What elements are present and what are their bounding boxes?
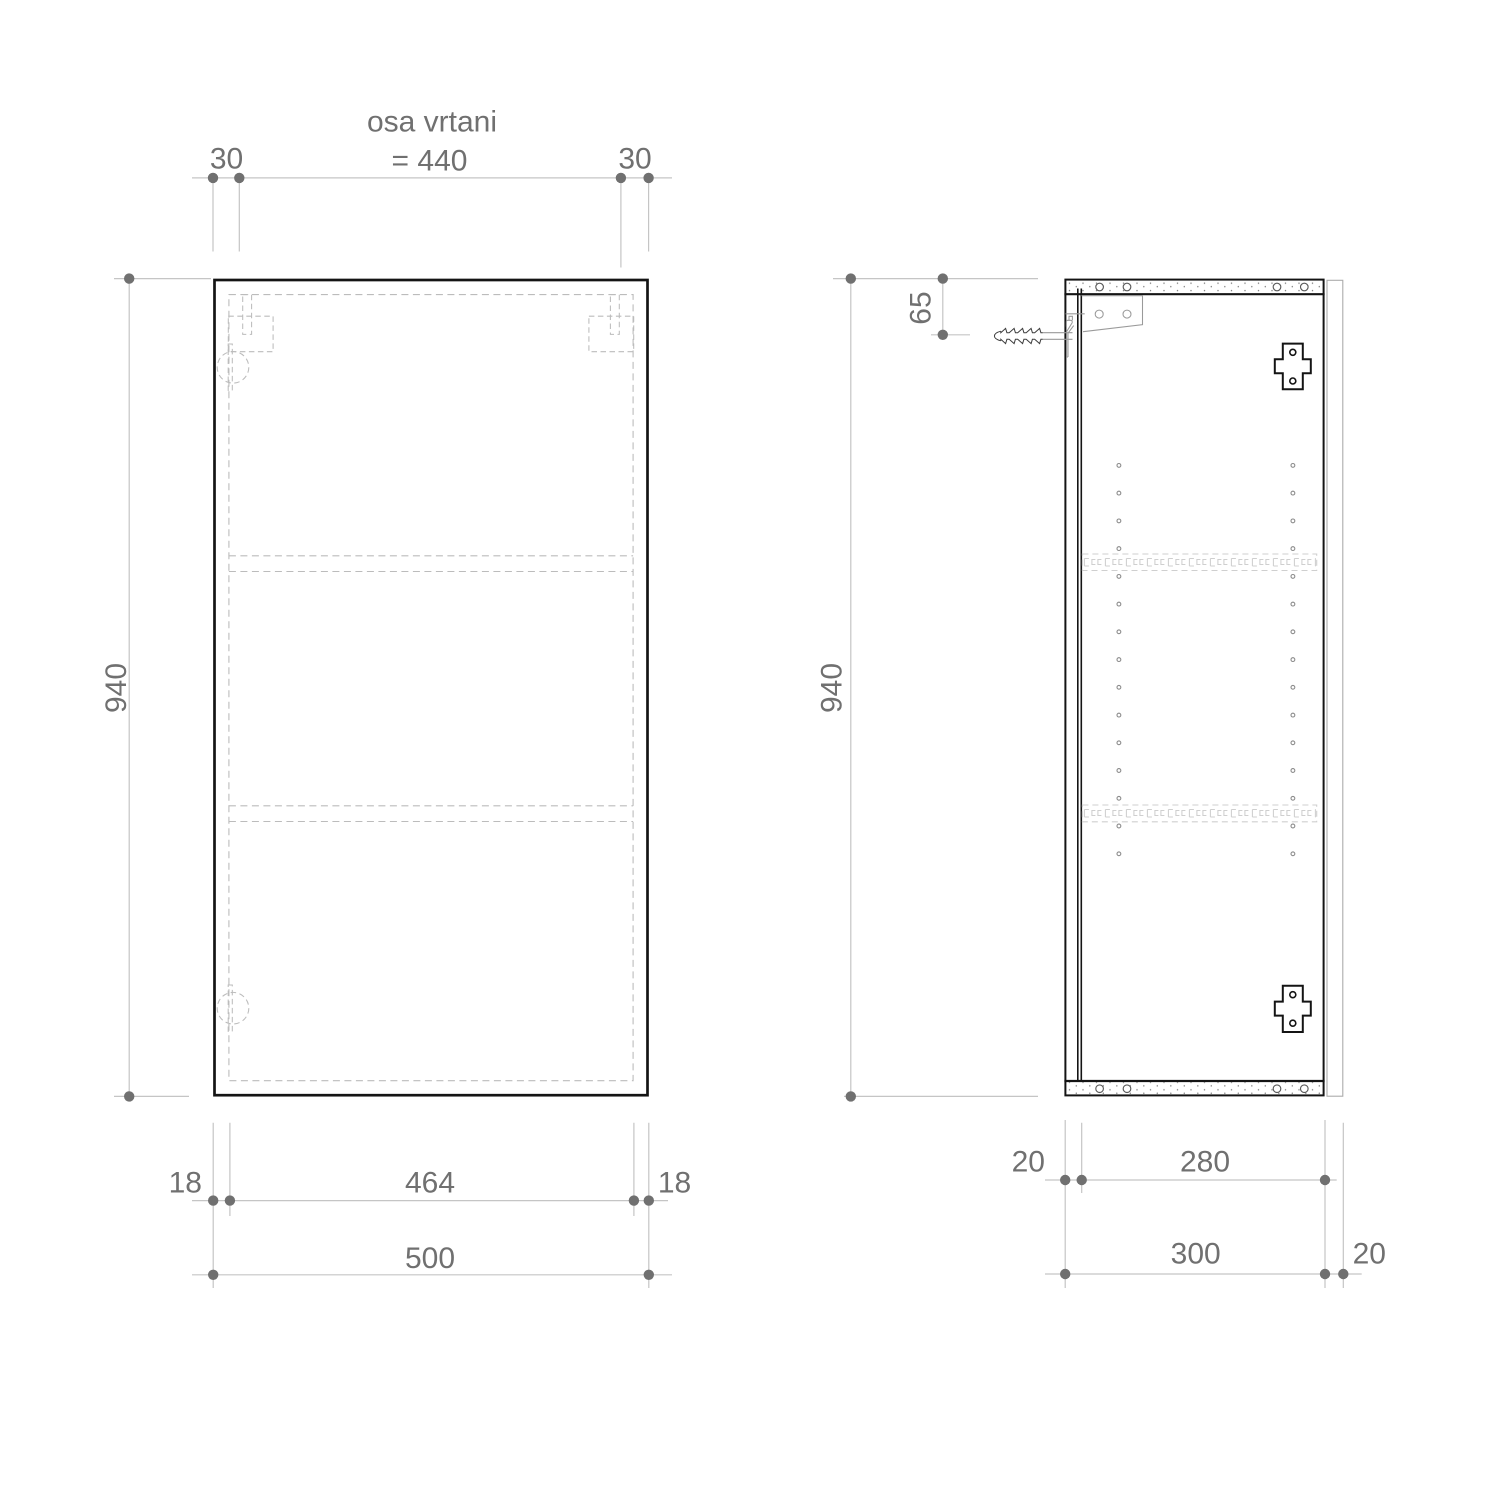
- svg-text:18: 18: [658, 1166, 691, 1199]
- svg-text:500: 500: [405, 1242, 455, 1275]
- svg-text:= 440: = 440: [392, 144, 468, 177]
- svg-text:940: 940: [100, 663, 133, 713]
- svg-text:280: 280: [1180, 1146, 1230, 1179]
- svg-text:300: 300: [1171, 1238, 1221, 1271]
- svg-text:20: 20: [1353, 1238, 1386, 1271]
- svg-text:940: 940: [816, 663, 849, 713]
- svg-text:65: 65: [905, 291, 938, 324]
- svg-text:20: 20: [1012, 1146, 1045, 1179]
- svg-text:osa vrtani: osa vrtani: [367, 106, 497, 139]
- svg-text:30: 30: [618, 142, 651, 175]
- svg-text:18: 18: [169, 1166, 202, 1199]
- svg-text:30: 30: [210, 142, 243, 175]
- svg-text:464: 464: [405, 1166, 455, 1199]
